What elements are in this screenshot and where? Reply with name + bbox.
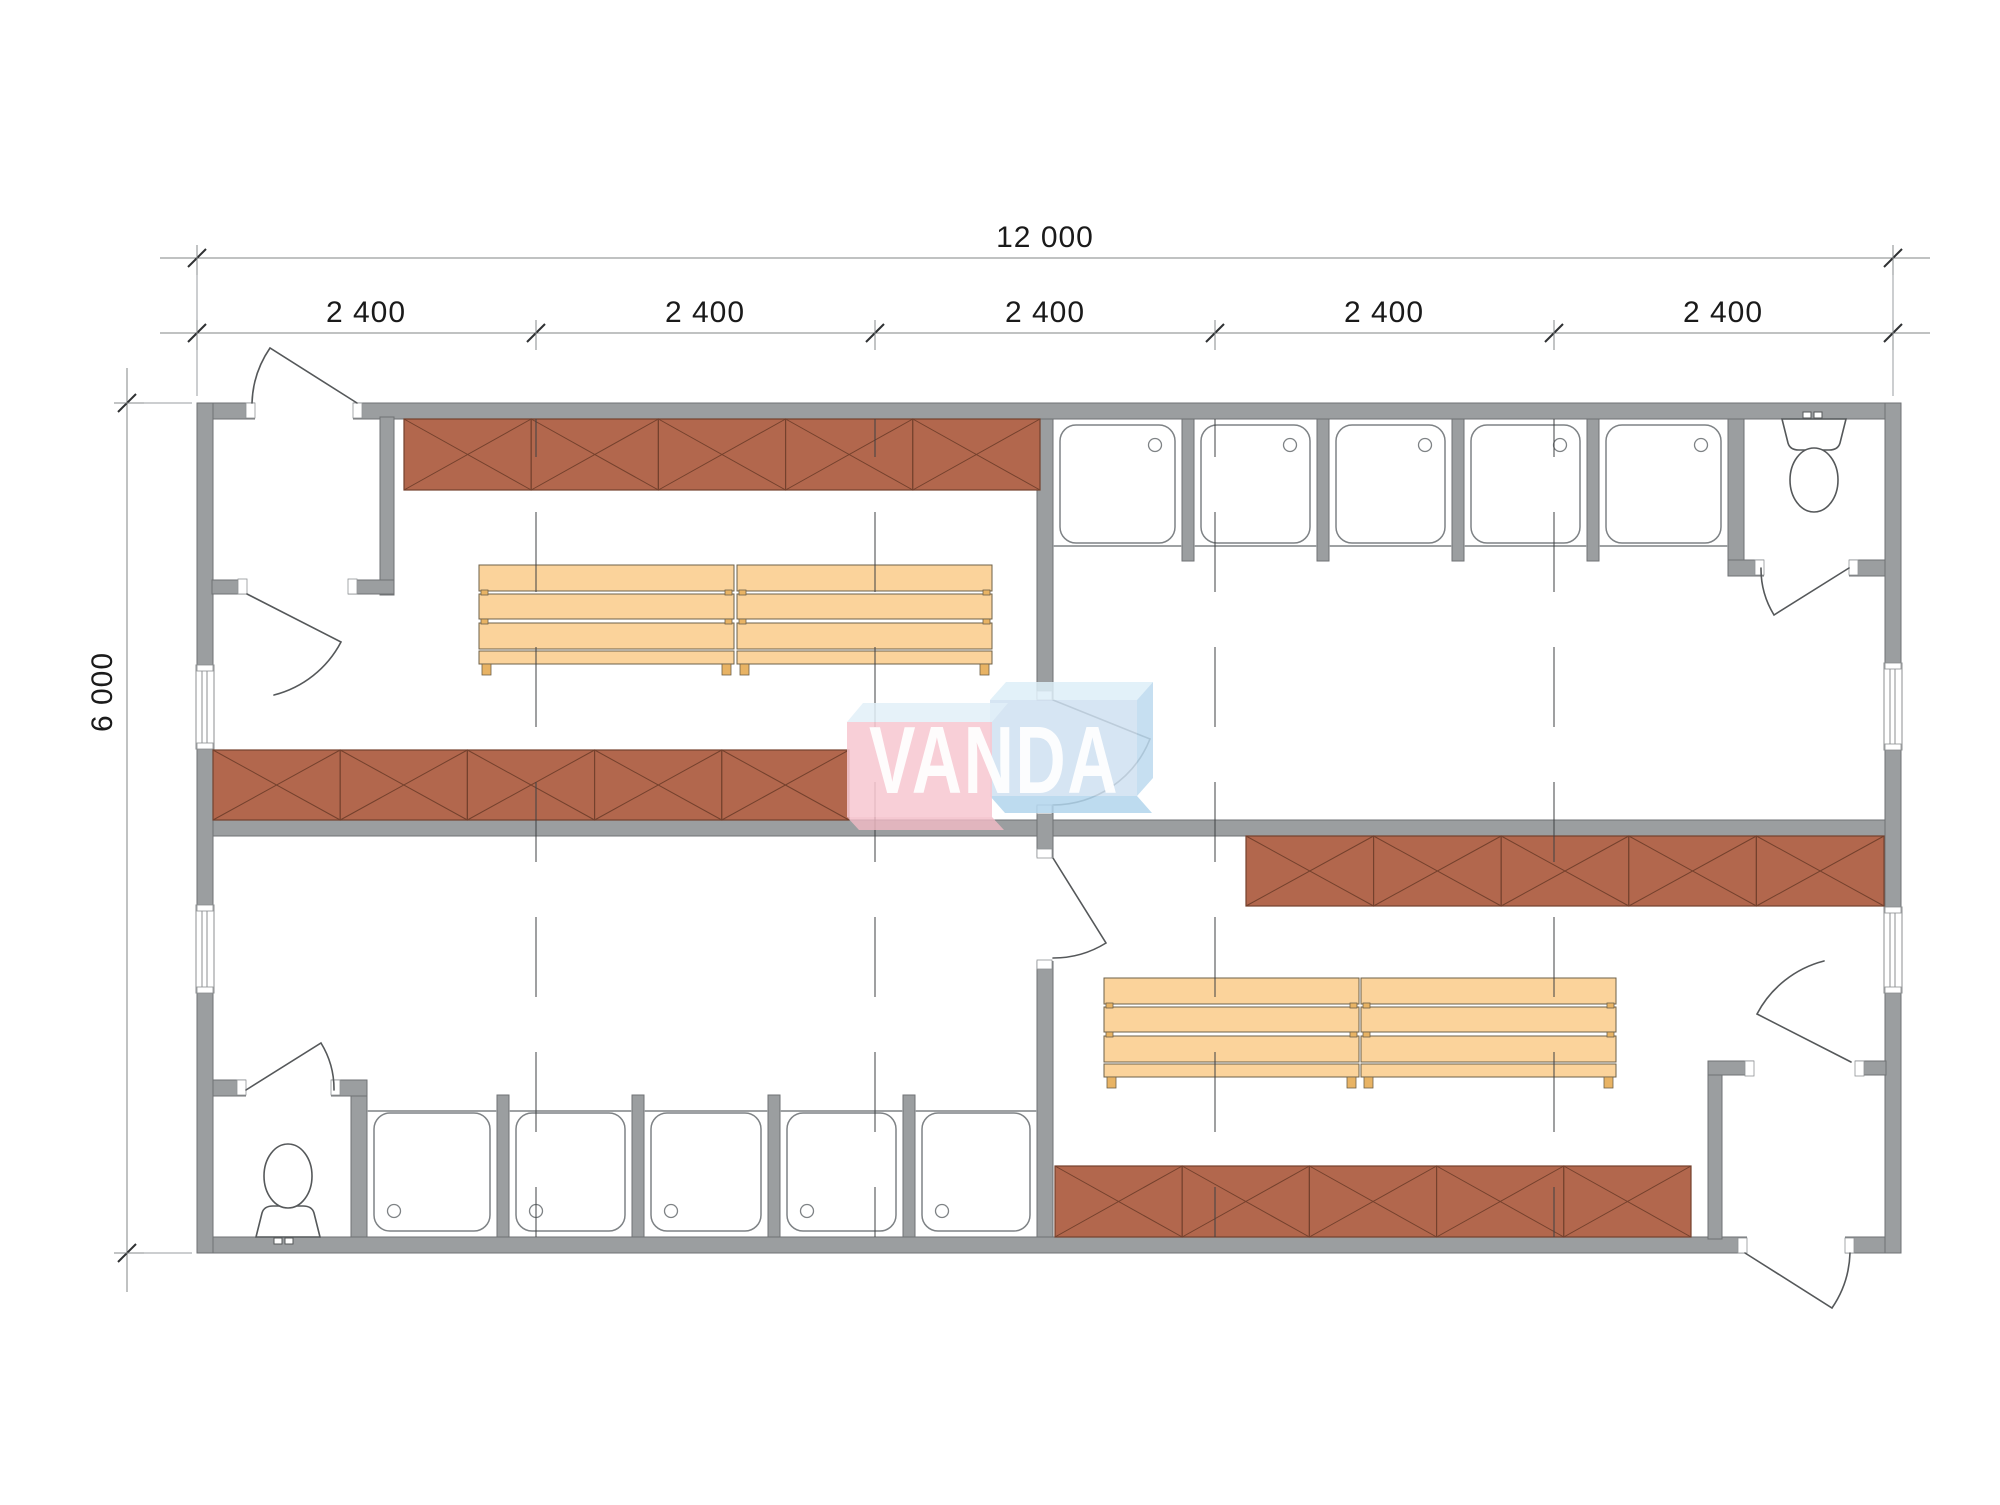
door-jamb: [1849, 560, 1858, 575]
bench-connector: [1363, 1003, 1370, 1008]
bench-slat: [479, 565, 734, 591]
bench-foot: [980, 664, 989, 675]
bench-slat: [737, 594, 992, 619]
dim-total-width-label: 12 000: [996, 221, 1094, 254]
bench-foot: [1107, 1077, 1116, 1088]
shower-partition: [1317, 419, 1329, 561]
door-jamb: [1037, 960, 1052, 969]
bench-connector: [725, 619, 732, 624]
bench-slat: [479, 623, 734, 649]
toilet-flush-button: [1803, 412, 1811, 418]
shower-partition: [632, 1095, 644, 1237]
bench-slat: [1361, 1007, 1616, 1032]
bench-connector: [1350, 1003, 1357, 1008]
toilet-tank: [1782, 419, 1846, 450]
wall-wc-bottom-left: [351, 1080, 367, 1237]
shower-drain: [1149, 439, 1162, 452]
wall-exterior-bottom: [197, 1237, 1901, 1253]
bench-connector: [1607, 1003, 1614, 1008]
door-jamb: [1755, 560, 1764, 575]
bench-connector: [1106, 1003, 1113, 1008]
bench-connector: [1363, 1032, 1370, 1037]
bench-connector: [1106, 1032, 1113, 1037]
dim-segment-label-5: 2 400: [1683, 296, 1763, 329]
logo-blue-top-face: [990, 682, 1153, 700]
dim-height-label: 6 000: [86, 652, 119, 732]
window: [196, 665, 214, 749]
window: [1884, 907, 1902, 993]
window: [1884, 663, 1902, 750]
toilet-tank: [256, 1206, 320, 1237]
wall-wc-top-right: [1728, 419, 1744, 576]
shower-drain: [936, 1205, 949, 1218]
window-sill: [1885, 987, 1901, 993]
door-jamb: [238, 579, 247, 594]
bench-slat: [1104, 1036, 1359, 1062]
door-jamb: [1738, 1238, 1747, 1253]
shower-drain: [801, 1205, 814, 1218]
shower-partition: [1182, 419, 1194, 561]
shower-partition: [1452, 419, 1464, 561]
door-opening-vestibule-inner: [247, 579, 348, 595]
vanda-watermark: VANDA: [847, 682, 1153, 830]
shower-partition: [903, 1095, 915, 1237]
bench-slat: [1104, 1064, 1359, 1077]
wall-exterior-top: [197, 403, 1901, 419]
bench-connector: [1607, 1032, 1614, 1037]
toilet-bowl: [264, 1144, 312, 1208]
shower-partition: [768, 1095, 780, 1237]
bench-slat: [479, 651, 734, 664]
toilet-flush-button: [285, 1238, 293, 1244]
door-jamb: [353, 403, 362, 418]
bench-connector: [481, 590, 488, 595]
bench-slat: [1361, 978, 1616, 1004]
door-opening-vestibule-inner-2: [1754, 1060, 1855, 1076]
bench-foot: [1347, 1077, 1356, 1088]
bench-foot: [1364, 1077, 1373, 1088]
bench-slat: [1104, 978, 1359, 1004]
window-sill: [197, 743, 213, 749]
floor-plan-page: 12 000 2 400 2 400 2 400 2 400 2 400 6 0…: [0, 0, 2000, 1505]
window-sill: [1885, 663, 1901, 669]
bench-connector: [983, 619, 990, 624]
bench-connector: [983, 590, 990, 595]
bench-slat: [479, 594, 734, 619]
toilet-flush-button: [1814, 412, 1822, 418]
window-sill: [197, 905, 213, 911]
bench-foot: [1604, 1077, 1613, 1088]
door-jamb: [1855, 1061, 1864, 1076]
bench-slat: [737, 623, 992, 649]
shower-partition: [1587, 419, 1599, 561]
bench-foot: [722, 664, 731, 675]
dim-segment-label-3: 2 400: [1005, 296, 1085, 329]
door-jamb: [246, 403, 255, 418]
bench-slat: [737, 651, 992, 664]
bench-slat: [1104, 1007, 1359, 1032]
door-opening-exit: [1747, 1236, 1845, 1255]
bench-connector: [739, 619, 746, 624]
door-jamb: [348, 579, 357, 594]
bench-connector: [1350, 1032, 1357, 1037]
logo-blue-side-face: [1137, 682, 1153, 796]
logo-brand-text: VANDA: [869, 707, 1119, 814]
shower-drain: [1554, 439, 1567, 452]
wall-central-vertical: [1037, 419, 1053, 1237]
dim-segment-label-1: 2 400: [326, 296, 406, 329]
window: [196, 905, 214, 993]
door-opening-wc-top: [1764, 559, 1849, 577]
shower-drain: [1419, 439, 1432, 452]
door-jamb: [1845, 1238, 1854, 1253]
toilet-flush-button: [274, 1238, 282, 1244]
door-jamb: [331, 1080, 340, 1095]
shower-partition: [497, 1095, 509, 1237]
shower-drain: [388, 1205, 401, 1218]
bench-slat: [737, 565, 992, 591]
door-jamb: [1745, 1061, 1754, 1076]
shower-drain: [1695, 439, 1708, 452]
dim-segment-label-2: 2 400: [665, 296, 745, 329]
wall-vestibule-bottom-right: [1708, 1061, 1722, 1239]
shower-drain: [665, 1205, 678, 1218]
bench-connector: [481, 619, 488, 624]
wall-exterior-right: [1885, 403, 1901, 1253]
window-sill: [1885, 907, 1901, 913]
bench-foot: [740, 664, 749, 675]
dim-segment-label-4: 2 400: [1344, 296, 1424, 329]
door-opening-central-lower: [1036, 857, 1054, 961]
door-jamb: [237, 1080, 246, 1095]
window-sill: [1885, 744, 1901, 750]
wall-exterior-left: [197, 403, 213, 1253]
toilet-bowl: [1790, 448, 1838, 512]
bench-foot: [482, 664, 491, 675]
door-jamb: [1037, 849, 1052, 858]
window-sill: [197, 987, 213, 993]
door-opening-entry: [255, 401, 353, 420]
shower-drain: [1284, 439, 1297, 452]
bench-slat: [1361, 1036, 1616, 1062]
window-sill: [197, 665, 213, 671]
bench-connector: [725, 590, 732, 595]
wall-vestibule-top-left: [380, 417, 394, 595]
bench-connector: [739, 590, 746, 595]
floor-plan-canvas: 12 000 2 400 2 400 2 400 2 400 2 400 6 0…: [0, 0, 2000, 1505]
logo-pink-shadow-face: [847, 817, 1004, 830]
bench-slat: [1361, 1064, 1616, 1077]
